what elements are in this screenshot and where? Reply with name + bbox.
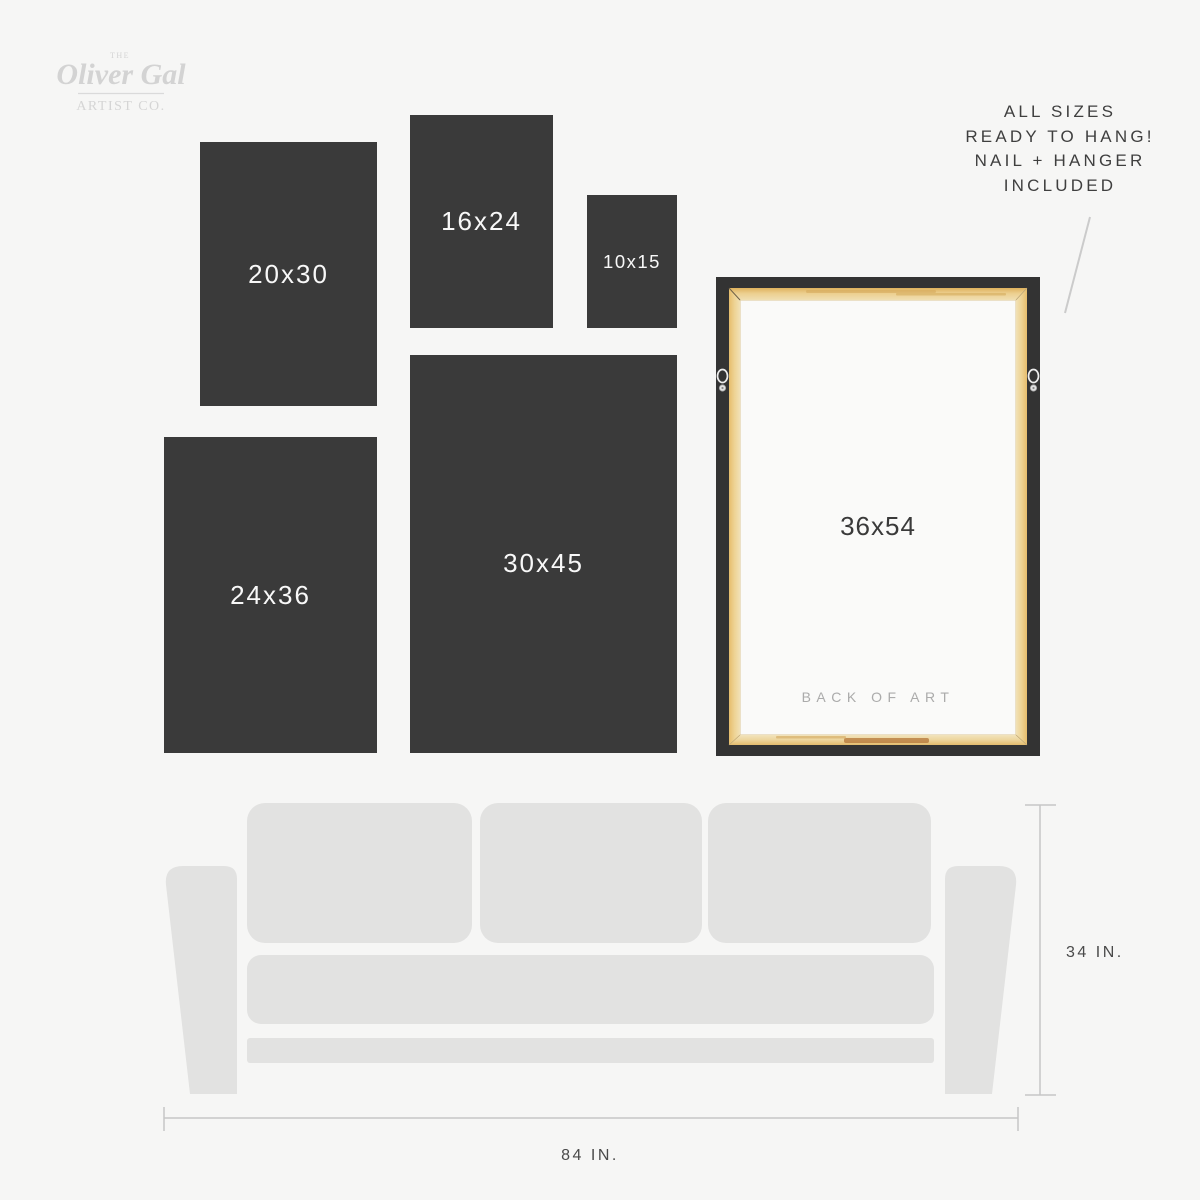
- svg-text:Oliver Gal: Oliver Gal: [56, 58, 186, 91]
- svg-text:ARTIST CO.: ARTIST CO.: [76, 99, 165, 114]
